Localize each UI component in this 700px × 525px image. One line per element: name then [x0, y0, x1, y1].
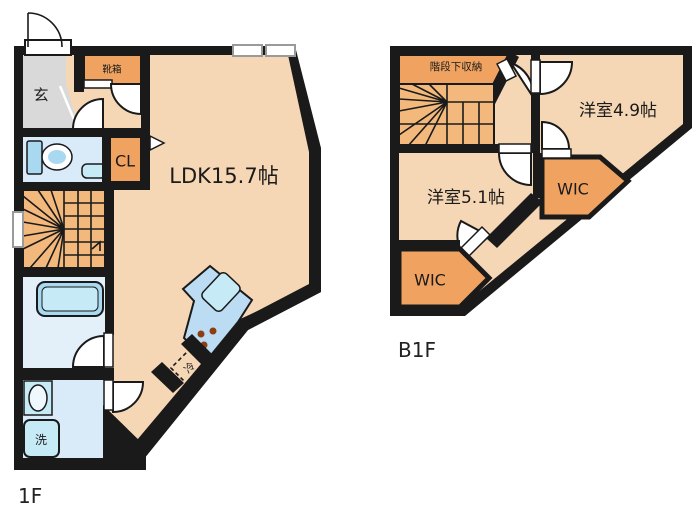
b1-bedroom51-label: 洋室5.1帖	[427, 188, 505, 208]
floor-1f-plan: 玄 靴箱 CL LDK15.7帖 洗 冷 1F	[13, 13, 321, 508]
window-icon	[13, 212, 23, 247]
toilet-bowl-inner-icon	[48, 150, 66, 164]
f1-washer-label: 洗	[35, 433, 47, 447]
floor-b1f-plan: 階段下収納 洋室4.9帖 WIC 洋室5.1帖 WIC B1F	[390, 46, 692, 362]
stove-burner-icon	[198, 331, 205, 338]
b1-wall	[533, 153, 542, 198]
floor-plan-image: 玄 靴箱 CL LDK15.7帖 洗 冷 1F	[0, 0, 700, 525]
window-icon	[266, 45, 295, 56]
toilet-tank-icon	[27, 141, 42, 174]
entrance-door-icon	[25, 13, 71, 55]
f1-ldk-label: LDK15.7帖	[169, 164, 278, 188]
f1-wall	[105, 277, 114, 335]
f1-wall	[102, 137, 110, 182]
b1-floor-label: B1F	[398, 338, 436, 362]
f1-wall	[14, 182, 150, 190]
f1-hall-door-leaf	[84, 80, 112, 88]
stove-burner-icon	[210, 328, 217, 335]
f1-wall	[105, 190, 114, 277]
window-icon	[233, 45, 262, 56]
f1-wall	[14, 268, 114, 277]
f1-genkan-label: 玄	[33, 86, 48, 104]
b1-wic-upper-label: WIC	[557, 180, 589, 199]
b1-bedroom51-door-leaf	[499, 144, 531, 153]
bathtub-inner-icon	[42, 287, 98, 311]
b1-bedroom49-label: 洋室4.9帖	[579, 101, 657, 121]
b1-staircase	[399, 84, 494, 146]
b1-bedroom49-door-leaf	[531, 60, 540, 93]
f1-wall	[14, 368, 114, 380]
f1-washroom-door-leaf	[104, 380, 113, 410]
f1-wall	[74, 55, 84, 92]
f1-wall	[141, 46, 150, 190]
b1-wic-upper-door-leaf	[542, 149, 571, 158]
floor-plan-svg: 玄 靴箱 CL LDK15.7帖 洗 冷 1F	[0, 0, 700, 525]
f1-wall	[14, 128, 150, 137]
f1-closet-label: CL	[115, 152, 135, 171]
f1-shoebox-label: 靴箱	[102, 64, 121, 76]
f1-bath-door-leaf	[104, 333, 113, 367]
washbasin-bowl-icon	[29, 385, 47, 411]
f1-floor-label: 1F	[18, 484, 42, 508]
b1-storage-label: 階段下収納	[430, 60, 483, 73]
f1-staircase	[23, 190, 105, 268]
b1-wic-lower-label: WIC	[414, 271, 446, 290]
